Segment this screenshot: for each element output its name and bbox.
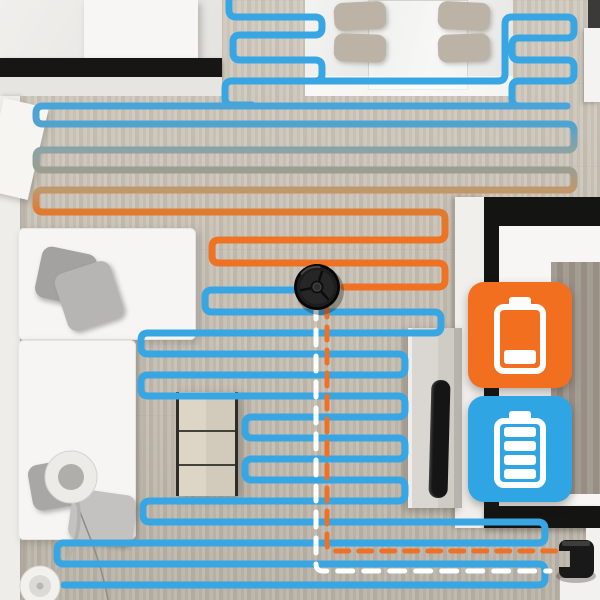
battery-full-badge <box>468 396 572 502</box>
scene <box>0 0 600 600</box>
charging-dock <box>556 540 596 583</box>
battery-low-badge <box>468 282 572 388</box>
cleaning-path-dining-right <box>315 17 574 106</box>
dock-top-face <box>562 541 590 546</box>
side-table-center <box>58 464 84 490</box>
cleaning-path-dining <box>225 0 322 105</box>
lamp-finial <box>37 583 44 590</box>
cleaning-path-battery-draining <box>36 106 574 287</box>
robot-vacuum <box>288 258 346 316</box>
battery-low-icon <box>494 297 546 374</box>
battery-full-icon <box>494 411 546 488</box>
side-table <box>45 451 97 503</box>
